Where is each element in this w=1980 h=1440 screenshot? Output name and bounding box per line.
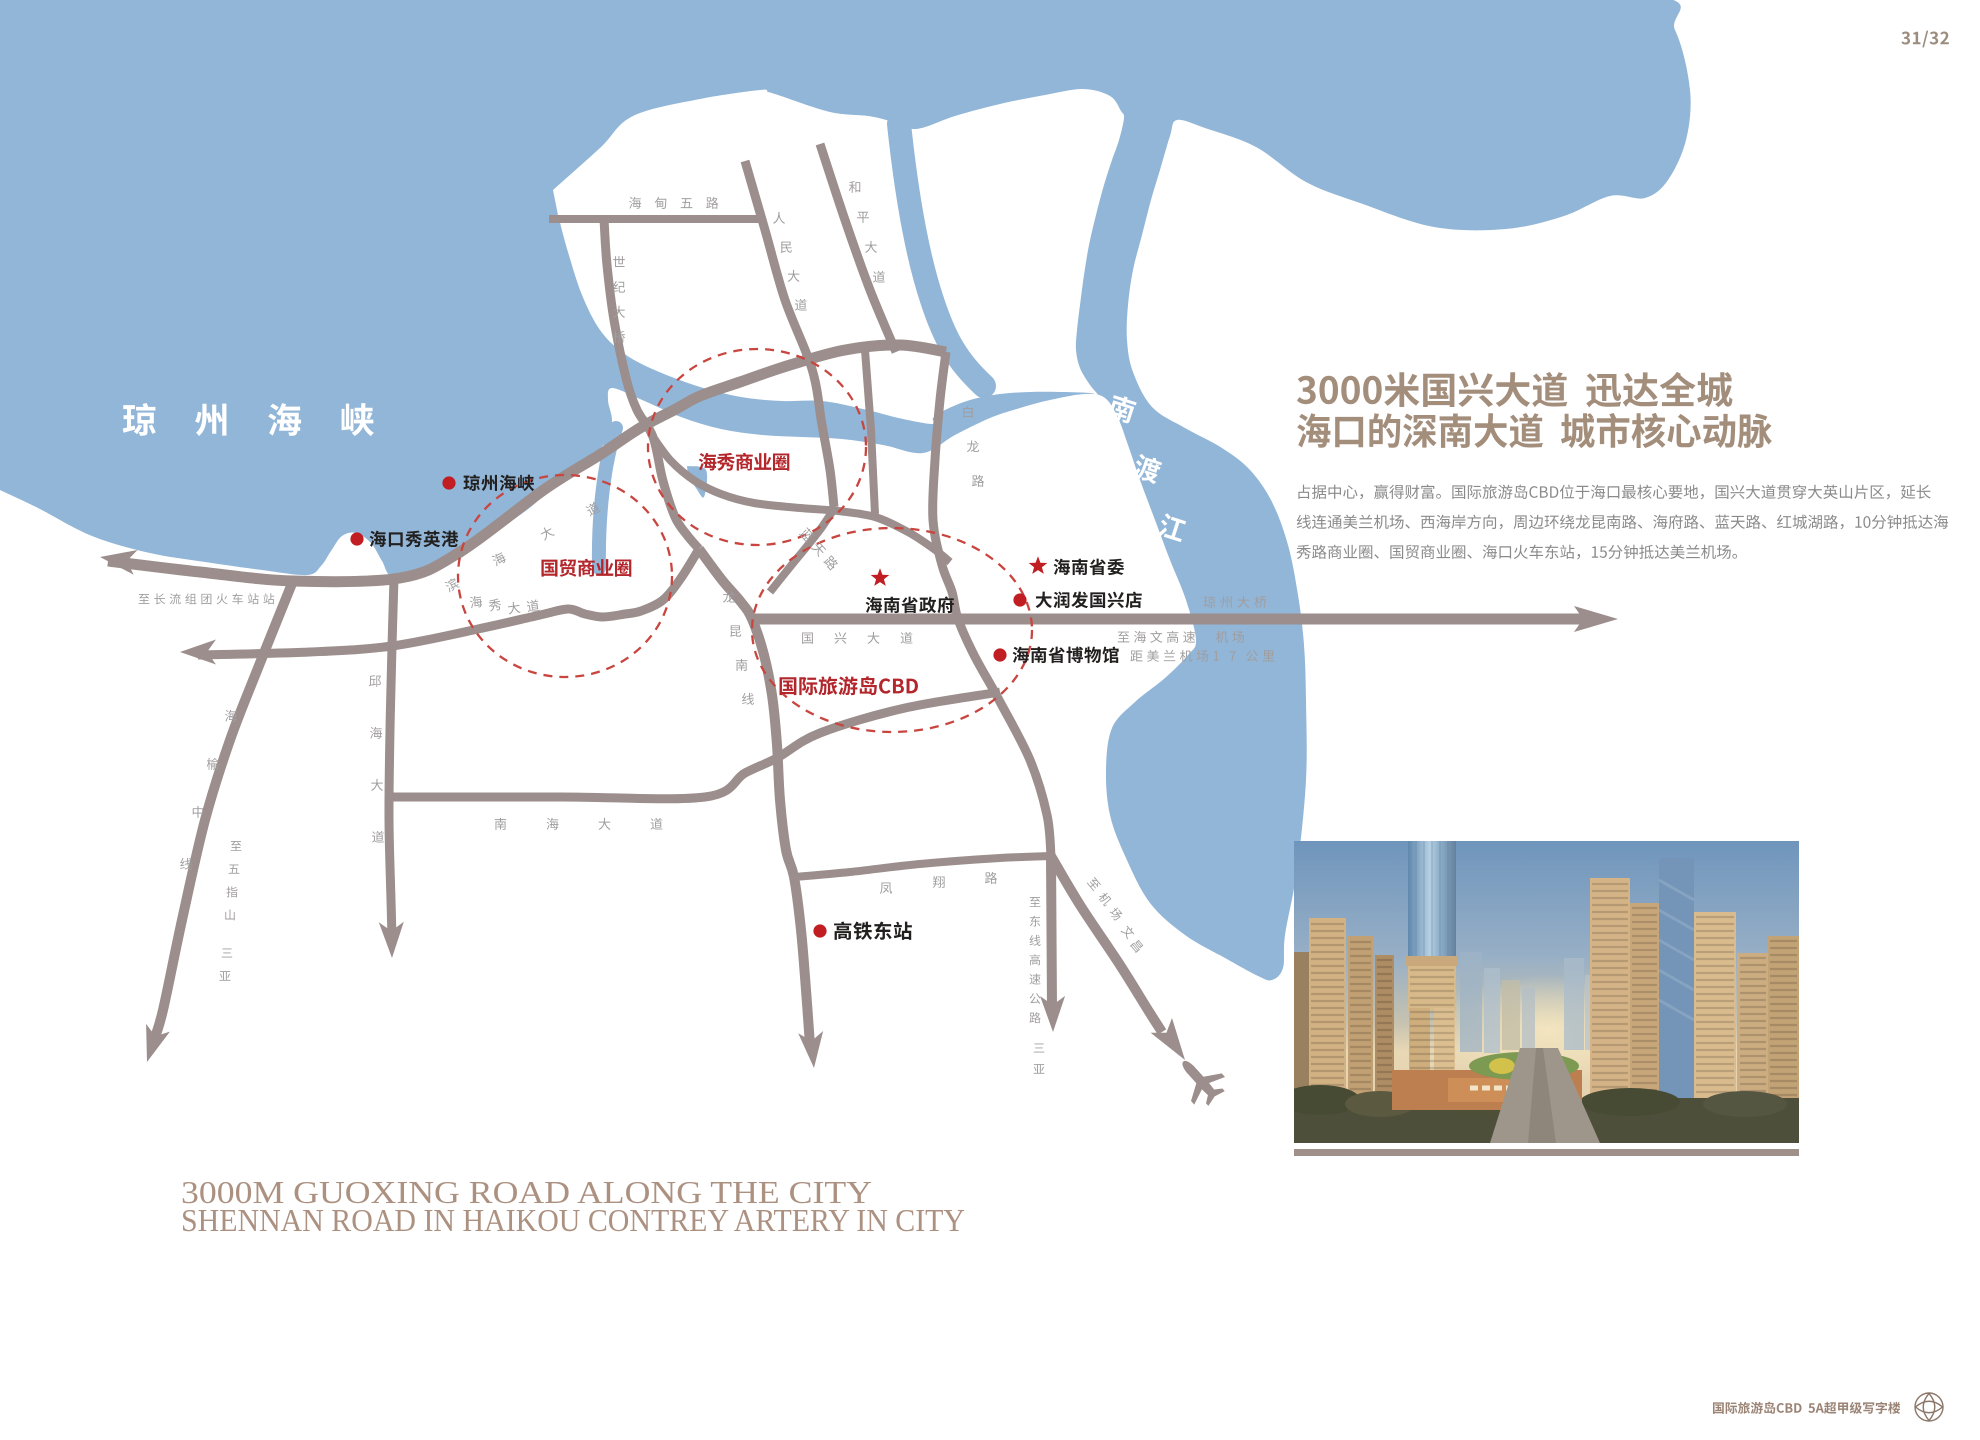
svg-text:SHENNAN ROAD IN HAIKOU CONTREY: SHENNAN ROAD IN HAIKOU CONTREY ARTERY IN… <box>181 1202 965 1238</box>
